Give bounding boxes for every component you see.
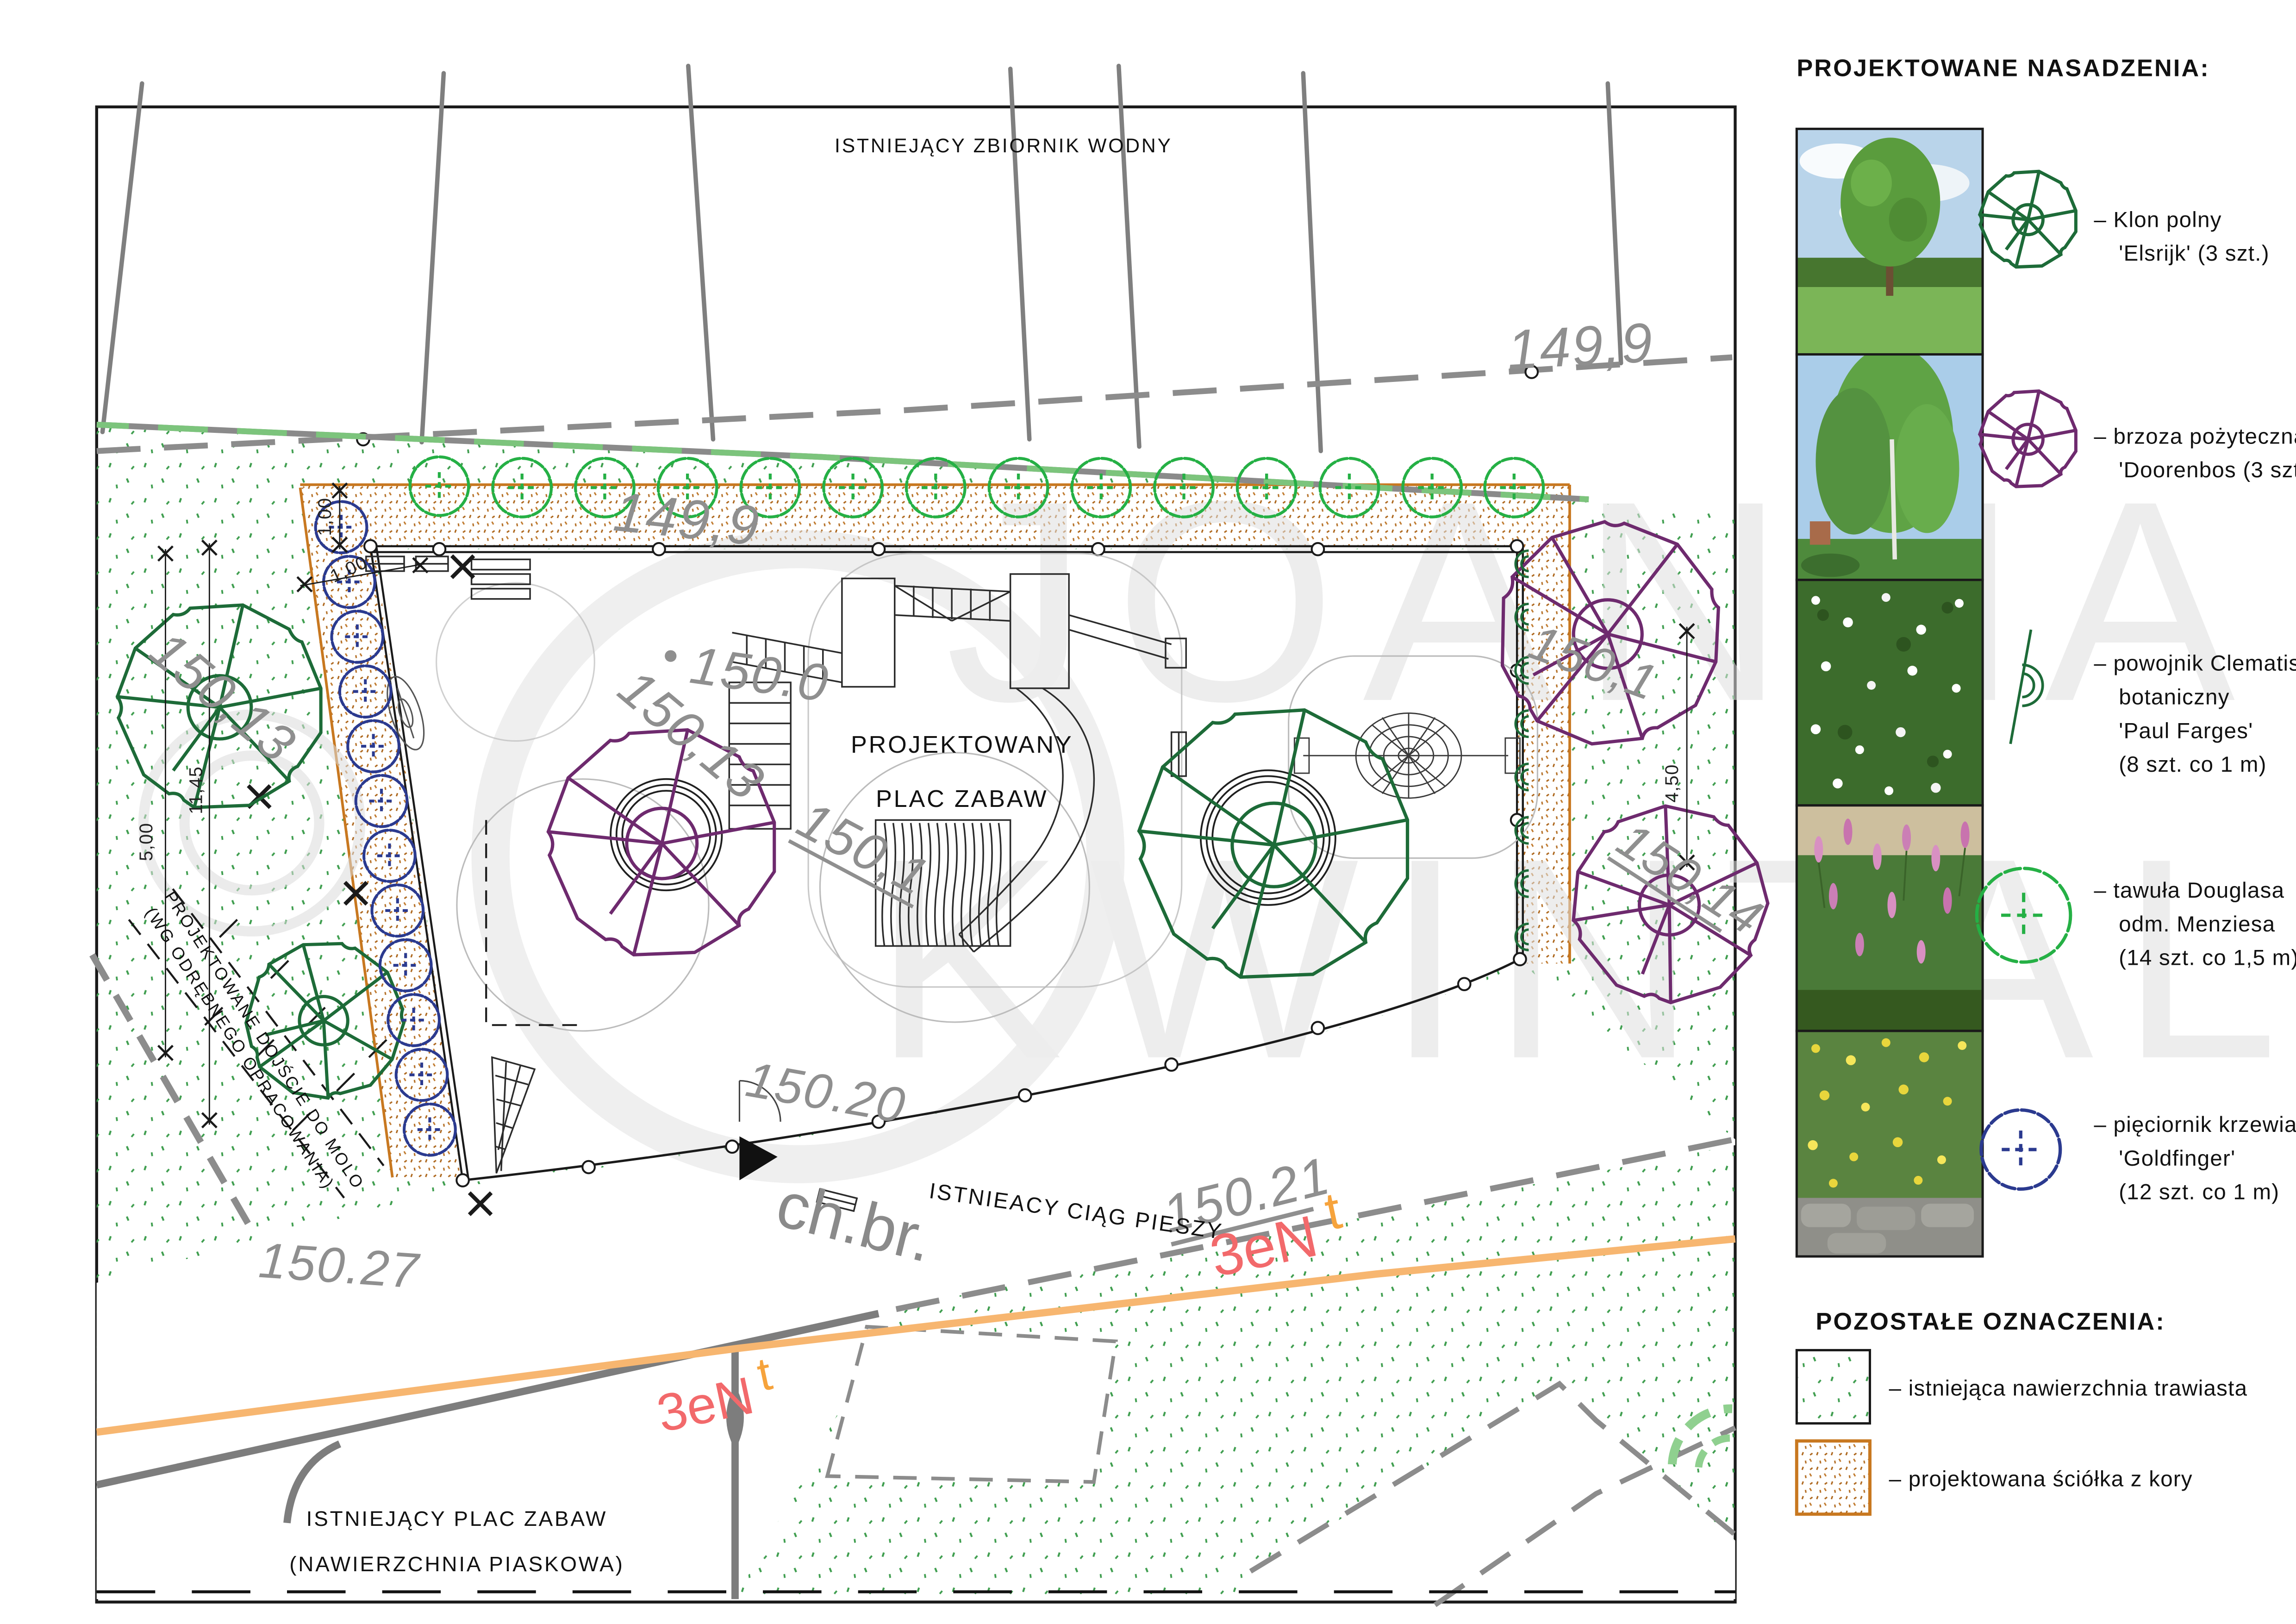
dim-11-45: 11,45 bbox=[186, 766, 206, 814]
dim-4-50: 4,50 bbox=[1662, 764, 1682, 802]
svg-text:– pięciornik krzewiasty: – pięciornik krzewiasty bbox=[2094, 1112, 2296, 1137]
water-label: ISTNIEJĄCY ZBIORNIK WODNY bbox=[835, 135, 1173, 157]
svg-text:– Klon polny: – Klon polny bbox=[2094, 207, 2221, 232]
photo-klon bbox=[1797, 129, 1983, 354]
svg-text:'Doorenbos (3 szt.): 'Doorenbos (3 szt.) bbox=[2119, 458, 2296, 482]
playground-title-1: PROJEKTOWANY bbox=[851, 731, 1073, 758]
svg-text:'Goldfinger': 'Goldfinger' bbox=[2119, 1146, 2235, 1171]
legend-other-title: POZOSTAŁE OZNACZENIA: bbox=[1816, 1308, 2165, 1335]
dim-1-00-top: 1,00 bbox=[315, 497, 335, 536]
svg-text:(14 szt. co 1,5 m): (14 szt. co 1,5 m) bbox=[2119, 946, 2296, 970]
svg-text:'Paul Farges': 'Paul Farges' bbox=[2119, 718, 2253, 743]
photo-powojnik bbox=[1797, 580, 1983, 806]
photo-brzoza bbox=[1797, 346, 1983, 580]
svg-text:– tawuła Douglasa: – tawuła Douglasa bbox=[2094, 878, 2284, 903]
elev-150-27: 150.27 bbox=[257, 1232, 422, 1299]
elev-149-9: 149,9 bbox=[1506, 312, 1655, 381]
svg-text:– brzoza pożyteczna: – brzoza pożyteczna bbox=[2094, 424, 2296, 449]
existing-playground-label-1: ISTNIEJĄCY PLAC ZABAW bbox=[306, 1506, 608, 1530]
svg-text:(12 szt. co 1 m): (12 szt. co 1 m) bbox=[2119, 1180, 2279, 1205]
svg-text:botaniczny: botaniczny bbox=[2119, 685, 2229, 710]
legend-title: PROJEKTOWANE NASADZENIA: bbox=[1797, 55, 2210, 81]
site-plan-drawing: JOANNA KWINTAL bbox=[0, 0, 2296, 1624]
svg-text:odm. Menziesa: odm. Menziesa bbox=[2119, 912, 2275, 937]
legend-bark-label: – projektowana ściółka z kory bbox=[1889, 1467, 2193, 1492]
landscape-plan-sheet: JOANNA KWINTAL bbox=[0, 0, 2296, 1624]
dim-5-00: 5,00 bbox=[136, 823, 156, 861]
legend-entry-tawula: – tawuła Douglasa odm. Menziesa (14 szt.… bbox=[2094, 878, 2296, 970]
svg-text:(8 szt. co 1 m): (8 szt. co 1 m) bbox=[2119, 752, 2266, 777]
svg-text:'Elsrijk' (3 szt.): 'Elsrijk' (3 szt.) bbox=[2119, 241, 2270, 266]
legend-grass-label: – istniejąca nawierzchnia trawiasta bbox=[1889, 1376, 2248, 1401]
playground-title-2: PLAC ZABAW bbox=[876, 786, 1048, 812]
photo-tawula bbox=[1797, 806, 1983, 1031]
svg-text:– powojnik Clematis: – powojnik Clematis bbox=[2094, 651, 2296, 676]
existing-playground-label-2: (NAWIERZCHNIA PIASKOWA) bbox=[289, 1552, 624, 1576]
watermark-text-line2: KWINTAL bbox=[873, 799, 2296, 1118]
photo-pieciornik bbox=[1797, 1031, 1983, 1256]
